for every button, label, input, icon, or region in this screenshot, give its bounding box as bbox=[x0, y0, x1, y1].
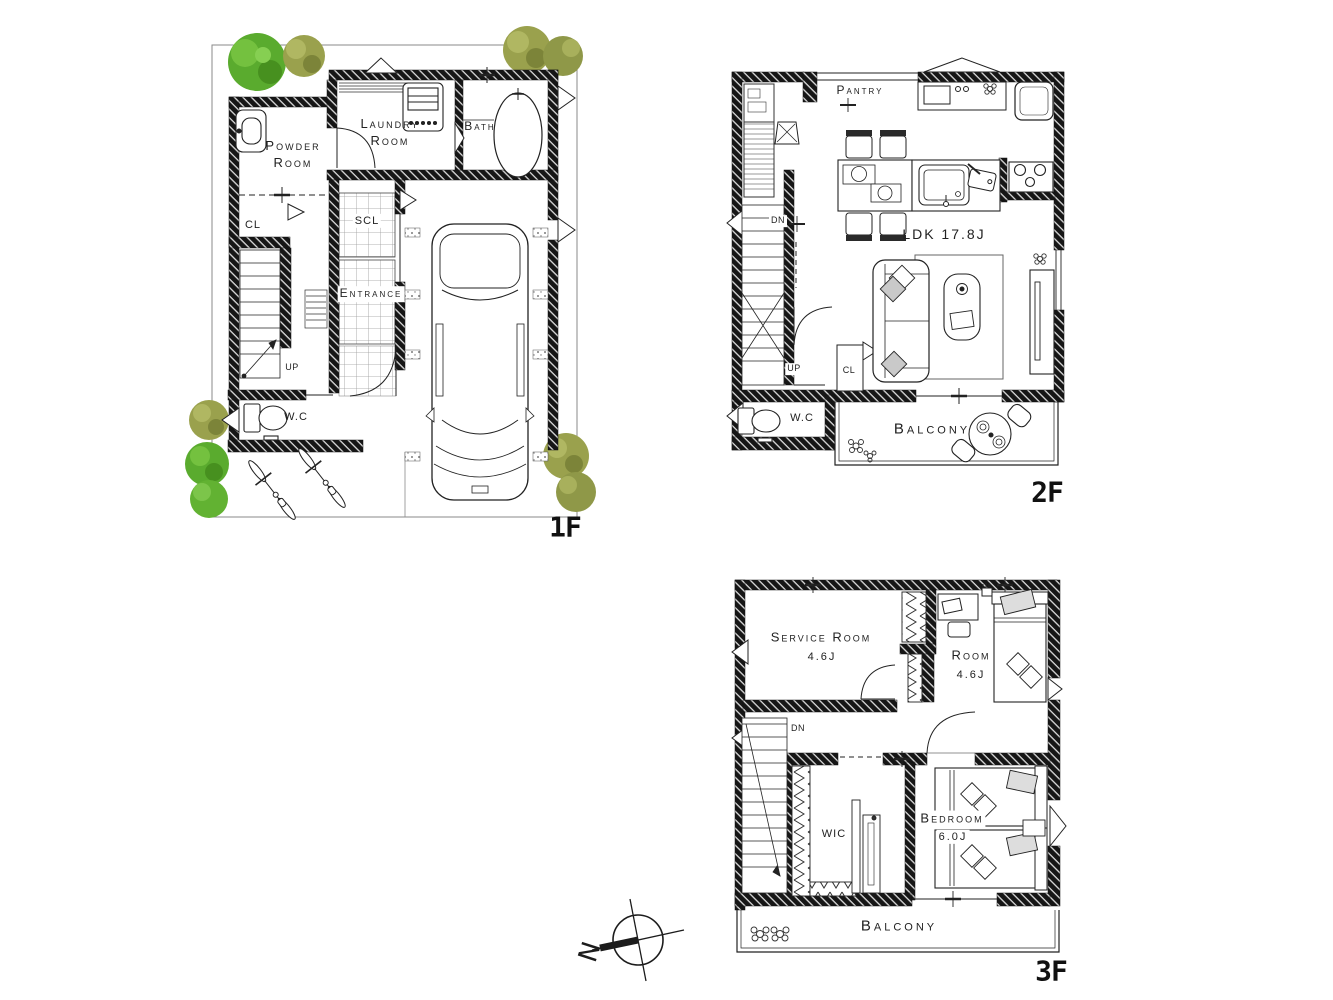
porch-tile-floor bbox=[339, 346, 396, 396]
powder-window bbox=[239, 187, 325, 203]
pantry-shelves bbox=[744, 84, 774, 197]
floor-tag-3f: 3F bbox=[1035, 955, 1067, 988]
room-label-bath: Bath bbox=[464, 119, 495, 135]
room-label-balcony: Balcony bbox=[861, 916, 937, 936]
gable-icon bbox=[365, 58, 397, 73]
room-label-room: Room bbox=[952, 648, 991, 665]
stairs-icon bbox=[742, 205, 784, 385]
stairs-icon bbox=[742, 718, 787, 893]
stair-label-up: UP bbox=[785, 363, 803, 375]
stair-label-dn: DN bbox=[769, 215, 787, 227]
stairs-icon bbox=[240, 250, 280, 378]
flower-icon bbox=[849, 440, 877, 463]
tree-icon bbox=[283, 35, 325, 77]
flower-icon bbox=[751, 927, 789, 941]
room-label-scl: SCL bbox=[353, 214, 381, 228]
floor-1f-plan: Powder Room Laundry Room Bath CL SCL Ent… bbox=[200, 28, 598, 552]
bicycle-icon bbox=[291, 443, 352, 514]
tv-board-icon bbox=[1030, 270, 1054, 374]
room-label-wc: W.C bbox=[284, 410, 308, 424]
floor-3f-plan: Service Room 4.6J Room 4.6J DN WIC Bedro… bbox=[722, 568, 1074, 1000]
car-icon bbox=[426, 224, 534, 500]
bath-window-cross bbox=[479, 67, 495, 83]
floor-2f-plan: Pantry LDK 17.8J DN UP CL W.C Balcony 2F bbox=[722, 58, 1074, 510]
stair-label-dn: DN bbox=[789, 723, 807, 735]
nightstand-icon bbox=[1023, 820, 1045, 836]
coffee-table-icon bbox=[944, 274, 980, 340]
room-label-ldk: LDK 17.8J bbox=[902, 225, 985, 243]
desk-icon bbox=[938, 583, 992, 637]
bicycle-icon bbox=[241, 455, 302, 526]
balcony-door bbox=[916, 388, 1002, 404]
room-label-wic: WIC bbox=[820, 827, 848, 841]
compass-icon: N bbox=[578, 893, 708, 993]
tree-icon bbox=[190, 480, 228, 518]
kitchen-counter-icon bbox=[918, 82, 1006, 110]
room-area-service-room: 4.6J bbox=[808, 650, 837, 664]
room-label-balcony: Balcony bbox=[894, 419, 970, 439]
tree-icon bbox=[185, 442, 229, 486]
entrance-tile-floor bbox=[339, 260, 395, 344]
dining-table-icon bbox=[838, 160, 912, 211]
room-area-bedroom: 6.0J bbox=[937, 830, 970, 844]
tree-icon bbox=[503, 26, 551, 74]
compass: N bbox=[578, 893, 708, 993]
floor-plan-sheet: Powder Room Laundry Room Bath CL SCL Ent… bbox=[0, 0, 1333, 1000]
floor-tag-2f: 2F bbox=[1031, 476, 1063, 509]
tree-icon bbox=[228, 33, 286, 91]
floor-tag-1f: 1F bbox=[549, 511, 581, 544]
room-label-laundry-room: Laundry Room bbox=[351, 116, 429, 150]
room-label-entrance: Entrance bbox=[338, 286, 405, 302]
room-label-bedroom: Bedroom bbox=[918, 811, 985, 828]
room-label-cl: CL bbox=[841, 365, 858, 377]
tree-icon bbox=[556, 472, 596, 512]
fridge-icon bbox=[1015, 82, 1053, 120]
room-label-powder-room: Powder Room bbox=[254, 138, 332, 172]
room-label-pantry: Pantry bbox=[837, 83, 884, 99]
room-label-wc: W.C bbox=[790, 411, 814, 425]
stove-icon bbox=[1009, 162, 1053, 192]
gable-icon bbox=[924, 58, 1000, 72]
step-stool-icon bbox=[775, 122, 799, 144]
entrance-mat bbox=[305, 290, 327, 328]
stair-label-up: UP bbox=[283, 362, 301, 374]
room-area-room: 4.6J bbox=[957, 668, 986, 682]
plant-icon bbox=[1034, 254, 1046, 264]
room-label-service-room: Service Room bbox=[771, 630, 872, 647]
compass-north-label: N bbox=[573, 938, 608, 966]
room-label-cl: CL bbox=[245, 218, 261, 232]
pantry-leader-cross bbox=[840, 98, 856, 112]
toilet-icon bbox=[244, 404, 287, 440]
bed-icon bbox=[992, 589, 1048, 702]
floor-2f-drawing bbox=[722, 58, 1074, 510]
